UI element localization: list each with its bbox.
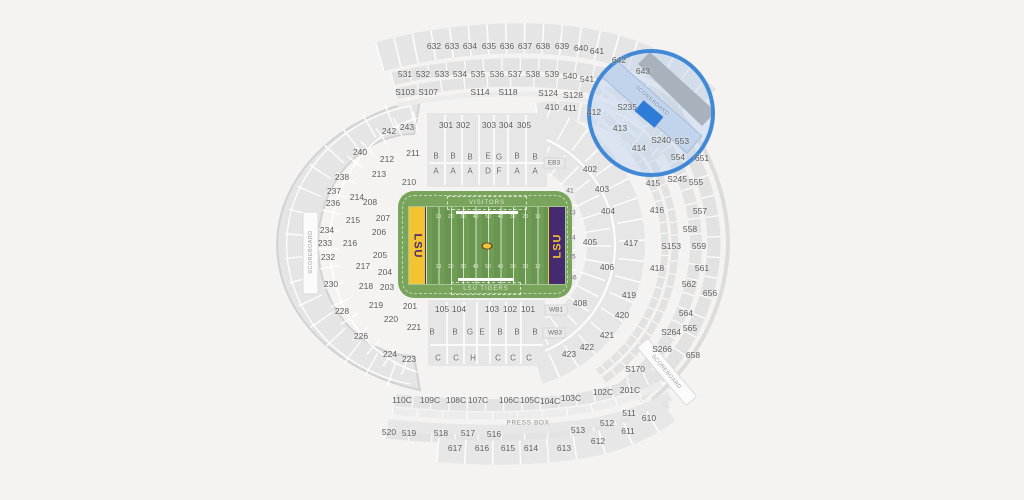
section-label[interactable]: 243 — [400, 122, 414, 132]
section-label[interactable]: 216 — [343, 238, 357, 248]
section-label[interactable]: 236 — [326, 198, 340, 208]
section-label[interactable]: S170 — [625, 364, 645, 374]
scoreboard-label: SCOREBOARD — [650, 354, 682, 391]
section-label[interactable]: 102C — [593, 387, 613, 397]
section-label[interactable]: 555 — [689, 177, 703, 187]
section-label[interactable]: 415 — [646, 178, 660, 188]
row-letter-label[interactable]: C — [453, 354, 459, 363]
section-label[interactable]: 221 — [407, 322, 421, 332]
section-label[interactable]: 558 — [683, 224, 697, 234]
section-label[interactable]: 105C — [520, 395, 540, 405]
section-label[interactable]: 233 — [318, 238, 332, 248]
section-label[interactable]: 635 — [482, 41, 496, 51]
section-label[interactable]: S107 — [418, 87, 438, 97]
section-label[interactable]: 220 — [384, 314, 398, 324]
row-letter-label[interactable]: B — [452, 328, 457, 337]
section-label[interactable]: 410 — [545, 102, 559, 112]
press-box-label: PRESS BOX — [507, 420, 550, 427]
section-label[interactable]: 238 — [335, 172, 349, 182]
section-label[interactable]: 642 — [612, 55, 626, 65]
row-letter-label[interactable]: H — [470, 354, 476, 363]
row-letter-label[interactable]: C — [435, 354, 441, 363]
section-label[interactable]: 535 — [471, 69, 485, 79]
section-label[interactable]: 656 — [703, 288, 717, 298]
section-label[interactable]: 103C — [561, 393, 581, 403]
section-label[interactable]: 211 — [406, 148, 420, 158]
section-label[interactable]: 561 — [695, 263, 709, 273]
row-letter-label[interactable]: C — [495, 354, 501, 363]
section-label[interactable]: 421 — [600, 330, 614, 340]
row-letter-label[interactable]: B — [450, 152, 455, 161]
section-label[interactable]: 212 — [380, 154, 394, 164]
section-label[interactable]: 422 — [580, 342, 594, 352]
row-letter-label[interactable]: E — [485, 152, 490, 161]
row-letter-label[interactable]: A — [467, 167, 472, 176]
section-label[interactable]: 411 — [563, 103, 577, 113]
section-label[interactable]: 537 — [508, 69, 522, 79]
scoreboard-label: SCOREBOARD — [308, 230, 314, 273]
row-letter-label[interactable]: B — [467, 153, 472, 162]
section-label[interactable]: 223 — [402, 354, 416, 364]
section-label[interactable]: 106C — [499, 395, 519, 405]
section-label[interactable]: 518 — [434, 428, 448, 438]
section-label[interactable]: EB3 — [548, 160, 560, 167]
section-label[interactable]: S266 — [652, 344, 672, 354]
section-label[interactable]: 562 — [682, 279, 696, 289]
row-letter-label[interactable]: B — [429, 328, 434, 337]
section-label[interactable]: 218 — [359, 281, 373, 291]
row-letter-label[interactable]: B — [433, 152, 438, 161]
section-label[interactable]: 640 — [574, 43, 588, 53]
section-label[interactable]: 219 — [369, 300, 383, 310]
section-label[interactable]: 633 — [445, 41, 459, 51]
section-label[interactable]: 413 — [613, 123, 627, 133]
section-label[interactable]: 301 — [439, 120, 453, 130]
section-label[interactable]: 102 — [503, 304, 517, 314]
section-label[interactable]: 406 — [600, 262, 614, 272]
section-label[interactable]: S264 — [661, 327, 681, 337]
section-label[interactable]: 101 — [521, 304, 535, 314]
section-label[interactable]: 557 — [693, 206, 707, 216]
section-label[interactable]: 564 — [679, 308, 693, 318]
section-label[interactable]: 304 — [499, 120, 513, 130]
section-label[interactable]: 540 — [563, 71, 577, 81]
section-label[interactable]: 104C — [540, 396, 560, 406]
section-label[interactable]: 423 — [562, 349, 576, 359]
section-label[interactable]: 108C — [446, 395, 466, 405]
section-label[interactable]: S128 — [563, 90, 583, 100]
row-letter-label[interactable]: G — [496, 153, 502, 162]
row-letter-label[interactable]: B — [514, 152, 519, 161]
section-label[interactable]: 417 — [624, 238, 638, 248]
section-label[interactable]: 641 — [590, 46, 604, 56]
section-label[interactable]: 538 — [526, 69, 540, 79]
section-label[interactable]: 634 — [463, 41, 477, 51]
row-letter-label[interactable]: E — [479, 328, 484, 337]
row-letter-label[interactable]: B — [514, 328, 519, 337]
section-label[interactable]: 616 — [475, 443, 489, 453]
row-letter-label[interactable]: A — [433, 167, 438, 176]
section-label[interactable]: 110C — [392, 395, 412, 405]
section-label[interactable]: 559 — [692, 241, 706, 251]
section-label[interactable]: 404 — [601, 206, 615, 216]
section-label[interactable]: 107C — [468, 395, 488, 405]
section-label[interactable]: 412 — [587, 107, 601, 117]
section-label[interactable]: 610 — [642, 413, 656, 423]
row-letter-label[interactable]: C — [510, 354, 516, 363]
section-label[interactable]: 419 — [622, 290, 636, 300]
section-label[interactable]: S245 — [667, 174, 687, 184]
section-label[interactable]: 206 — [372, 227, 386, 237]
stadium-map: LSU 102030405040302010 10203040504030201… — [0, 0, 1024, 500]
section-label[interactable]: 232 — [321, 252, 335, 262]
section-label[interactable]: 416 — [650, 205, 664, 215]
section-labels-layer: 6326336346356366376386396406416426435315… — [0, 0, 1024, 500]
section-label[interactable]: 615 — [501, 443, 515, 453]
section-label[interactable]: 418 — [650, 263, 664, 273]
section-label[interactable]: 565 — [683, 323, 697, 333]
section-label[interactable]: 541 — [580, 74, 594, 84]
section-label[interactable]: 203 — [380, 282, 394, 292]
section-label[interactable]: 44 — [568, 235, 575, 242]
section-label[interactable]: 651 — [695, 153, 709, 163]
section-label[interactable]: 405 — [583, 237, 597, 247]
section-label[interactable]: 46 — [569, 275, 576, 282]
section-label[interactable]: 403 — [595, 184, 609, 194]
section-label[interactable]: 617 — [448, 443, 462, 453]
section-label[interactable]: 45 — [568, 254, 575, 261]
section-label[interactable]: WB1 — [549, 307, 563, 314]
section-label[interactable]: 553 — [675, 136, 689, 146]
section-label[interactable]: 511 — [622, 408, 636, 418]
section-label[interactable]: 242 — [382, 126, 396, 136]
section-label[interactable]: 643 — [636, 66, 650, 76]
section-label[interactable]: 302 — [456, 120, 470, 130]
section-label[interactable]: 639 — [555, 41, 569, 51]
section-label[interactable]: 226 — [354, 331, 368, 341]
section-label[interactable]: 612 — [591, 436, 605, 446]
section-label[interactable]: 554 — [671, 152, 685, 162]
section-label[interactable]: 217 — [356, 261, 370, 271]
section-label[interactable]: 230 — [324, 279, 338, 289]
section-label[interactable]: 512 — [600, 418, 614, 428]
section-label[interactable]: S114 — [470, 87, 489, 97]
section-label[interactable]: 201C — [620, 385, 640, 395]
section-label[interactable]: 237 — [327, 186, 341, 196]
section-label[interactable]: 402 — [583, 164, 597, 174]
section-label[interactable]: 536 — [490, 69, 504, 79]
section-label[interactable]: S153 — [661, 241, 681, 251]
row-letter-label[interactable]: A — [450, 167, 455, 176]
section-label[interactable]: 105 — [435, 304, 449, 314]
row-letter-label[interactable]: C — [526, 354, 532, 363]
section-label[interactable]: 104 — [452, 304, 466, 314]
section-label[interactable]: 533 — [435, 69, 449, 79]
row-letter-label[interactable]: D — [485, 167, 491, 176]
section-label[interactable]: 519 — [402, 428, 416, 438]
section-label[interactable]: 109C — [420, 395, 440, 405]
section-label[interactable]: S240 — [651, 135, 671, 145]
section-label[interactable]: 614 — [524, 443, 538, 453]
section-label[interactable]: 303 — [482, 120, 496, 130]
section-label[interactable]: 658 — [686, 350, 700, 360]
section-label[interactable]: 513 — [571, 425, 585, 435]
section-label[interactable]: 637 — [518, 41, 532, 51]
section-label[interactable]: 613 — [557, 443, 571, 453]
section-label[interactable]: 531 — [398, 69, 412, 79]
section-label[interactable]: 201 — [403, 301, 417, 311]
section-label[interactable]: 532 — [416, 69, 430, 79]
section-label[interactable]: 240 — [353, 147, 367, 157]
section-label[interactable]: S235 — [617, 102, 637, 112]
row-letter-label[interactable]: B — [497, 328, 502, 337]
section-label[interactable]: 103 — [485, 304, 499, 314]
section-label[interactable]: 539 — [545, 69, 559, 79]
section-label[interactable]: 208 — [363, 197, 377, 207]
section-label[interactable]: S118 — [498, 87, 517, 97]
section-label[interactable]: 213 — [372, 169, 386, 179]
section-label[interactable]: 228 — [335, 306, 349, 316]
section-label[interactable]: 210 — [402, 177, 416, 187]
row-letter-label[interactable]: A — [532, 167, 537, 176]
row-letter-label[interactable]: F — [497, 167, 502, 176]
section-label[interactable]: 305 — [517, 120, 531, 130]
row-letter-label[interactable]: B — [532, 153, 537, 162]
section-label[interactable]: 224 — [383, 349, 397, 359]
section-label[interactable]: 408 — [573, 298, 587, 308]
section-label[interactable]: 215 — [346, 215, 360, 225]
section-label[interactable]: 204 — [378, 267, 392, 277]
section-label[interactable]: 632 — [427, 41, 441, 51]
section-label[interactable]: 234 — [320, 225, 334, 235]
section-label[interactable]: S124 — [538, 88, 558, 98]
section-label[interactable]: 516 — [487, 429, 501, 439]
section-label[interactable]: 420 — [615, 310, 629, 320]
section-label[interactable]: 611 — [621, 426, 635, 436]
section-label[interactable]: 636 — [500, 41, 514, 51]
section-label[interactable]: 43 — [568, 210, 575, 217]
row-letter-label[interactable]: A — [514, 167, 519, 176]
row-letter-label[interactable]: G — [467, 328, 473, 337]
row-letter-label[interactable]: B — [532, 328, 537, 337]
section-label[interactable]: S103 — [395, 87, 415, 97]
section-label[interactable]: 41 — [566, 188, 573, 195]
section-label[interactable]: 517 — [461, 428, 475, 438]
section-label[interactable]: 520 — [382, 427, 396, 437]
section-label[interactable]: 534 — [453, 69, 467, 79]
section-label[interactable]: 638 — [536, 41, 550, 51]
scoreboard-label: SCOREBOARD — [634, 85, 670, 118]
section-label[interactable]: 414 — [632, 143, 646, 153]
section-label[interactable]: 207 — [376, 213, 390, 223]
section-label[interactable]: 205 — [373, 250, 387, 260]
section-label[interactable]: WB3 — [548, 330, 562, 337]
